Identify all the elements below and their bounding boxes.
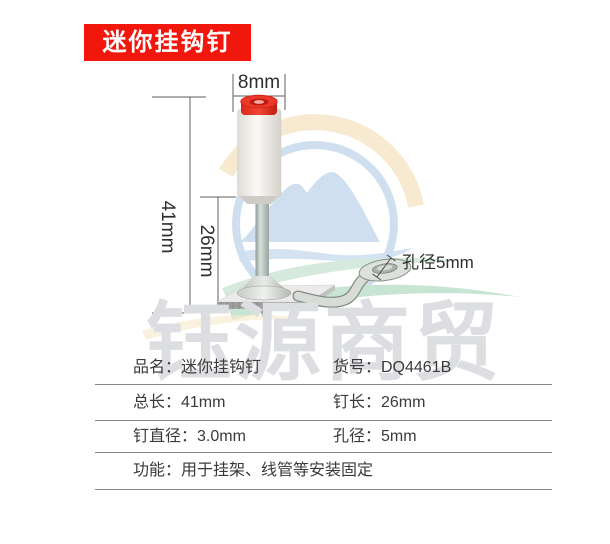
spec-table: 品名：迷你挂钩钉 货号：DQ4461B 总长：41mm 钉长：26mm 钉直径：…	[95, 352, 552, 490]
product-title-badge: 迷你挂钩钉	[84, 24, 251, 61]
spec-function: 功能：用于挂架、线管等安装固定	[133, 462, 373, 479]
spec-pin-diameter: 钉直径：3.0mm	[133, 428, 246, 445]
nail-cap-hole	[254, 100, 264, 104]
spec-row-function: 功能：用于挂架、线管等安装固定	[95, 453, 552, 490]
hole-diameter-label: 孔径5mm	[402, 253, 474, 272]
cap-diameter-label: 8mm	[238, 72, 280, 93]
product-title-label: 迷你挂钩钉	[103, 29, 233, 56]
nail-pin	[256, 194, 270, 284]
spec-pin-length: 钉长：26mm	[333, 385, 425, 420]
spec-product-name: 品名：迷你挂钩钉	[133, 359, 261, 376]
spec-row-length: 总长：41mm 钉长：26mm	[95, 385, 552, 421]
spec-total-length: 总长：41mm	[133, 394, 225, 411]
total-length-label: 41mm	[157, 201, 178, 254]
pin-length-label: 26mm	[196, 225, 217, 278]
spec-hole-diameter: 孔径：5mm	[333, 421, 417, 452]
spec-row-name: 品名：迷你挂钩钉 货号：DQ4461B	[95, 352, 552, 385]
product-card: 迷你挂钩钉	[0, 0, 610, 544]
nail-sleeve	[238, 109, 282, 197]
spec-row-diameter: 钉直径：3.0mm 孔径：5mm	[95, 421, 552, 453]
spec-item-number: 货号：DQ4461B	[333, 352, 451, 384]
